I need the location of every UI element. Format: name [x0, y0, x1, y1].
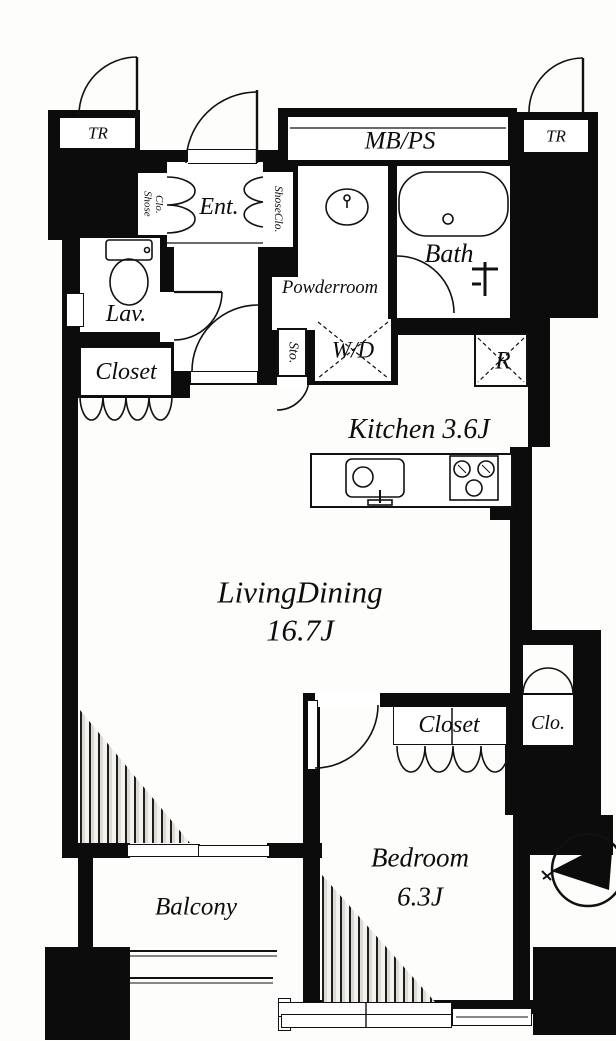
powder-room	[298, 166, 388, 330]
label-powder-room: Powderroom	[282, 279, 378, 298]
wall	[510, 630, 601, 645]
wall	[533, 947, 616, 1035]
floor-plan: TR TR MB/PS Ent. Shose Clo. ShoseClo. Po…	[0, 0, 616, 1041]
storage-door-opening	[277, 377, 307, 390]
folding-door	[397, 746, 509, 772]
label-living-dining-name: LivingDining	[217, 577, 382, 608]
label-shoe-closet-left: Shose Clo.	[138, 173, 167, 235]
label-storage: Sto.	[277, 328, 307, 377]
label-line: Shose	[141, 191, 153, 217]
wall	[510, 447, 532, 640]
door-arc	[529, 58, 583, 112]
bedroom-window-pane	[281, 1014, 452, 1028]
balcony-sliding-door-pane	[198, 845, 270, 857]
hallway	[174, 247, 258, 371]
label-tr-right: TR	[546, 128, 566, 145]
wall	[267, 843, 322, 858]
hall-door-leaf	[190, 371, 258, 384]
lavatory-door-opening	[160, 292, 174, 342]
label-bedroom-closet: Closet	[418, 713, 479, 737]
label-refrigerator: R	[495, 349, 510, 374]
label-washer-dryer: W/D	[332, 339, 374, 362]
bedroom-window-pane	[452, 1008, 532, 1026]
wall	[62, 843, 130, 858]
wall	[510, 645, 523, 693]
label-balcony: Balcony	[155, 895, 237, 920]
label-bedroom-name: Bedroom	[371, 845, 469, 872]
bedroom-door-leaf	[307, 700, 318, 770]
balcony-railing	[130, 951, 277, 983]
door-arc	[315, 705, 378, 768]
wall-fixture	[66, 293, 84, 327]
label-closet-left: Closet	[95, 360, 156, 384]
bifold-door	[523, 668, 573, 694]
wall	[45, 947, 130, 1040]
label-entrance: Ent.	[199, 195, 238, 219]
balcony-sliding-door-pane	[127, 844, 200, 857]
label-mb-ps: MB/PS	[365, 129, 436, 154]
kitchen-counter	[310, 453, 513, 508]
door-arc	[79, 57, 137, 115]
wall	[62, 238, 78, 858]
entry-door-opening	[188, 149, 257, 164]
label-line: Clo.	[153, 191, 165, 217]
wall	[530, 815, 613, 855]
label-bath: Bath	[424, 241, 473, 267]
label-living-dining-area: 16.7J	[266, 615, 334, 646]
bedroom-door-opening	[315, 693, 380, 707]
wall	[510, 158, 598, 318]
label-shoe-closet-right: ShoseClo.	[263, 172, 293, 247]
folding-door	[80, 396, 172, 420]
sloped-ceiling-hatch-living	[80, 710, 190, 843]
label-lavatory: Lav.	[106, 302, 146, 326]
label-tr-left: TR	[88, 125, 108, 142]
label-bedroom-area: 6.3J	[397, 884, 443, 911]
label-bedroom-clo: Clo.	[531, 713, 565, 733]
wall	[528, 318, 550, 447]
wall	[513, 815, 530, 1005]
label-kitchen: Kitchen 3.6J	[348, 416, 490, 444]
wall	[78, 855, 93, 952]
